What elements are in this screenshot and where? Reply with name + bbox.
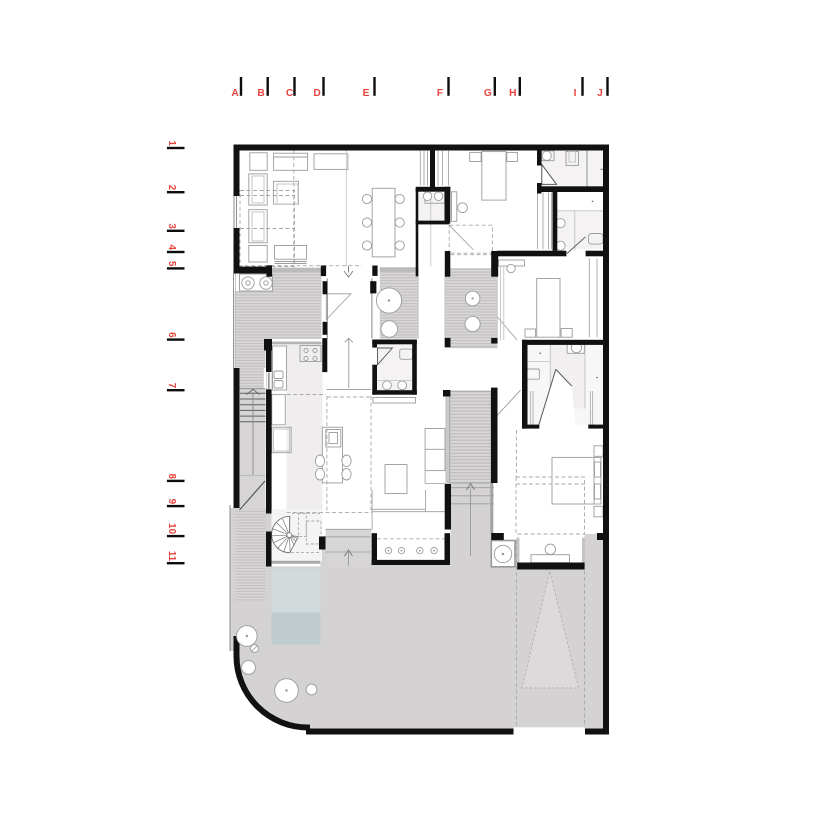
svg-text:F: F xyxy=(437,88,443,99)
svg-text:1: 1 xyxy=(166,141,177,147)
svg-text:5: 5 xyxy=(166,261,177,267)
svg-text:H: H xyxy=(509,88,516,99)
svg-text:B: B xyxy=(257,88,264,99)
svg-text:J: J xyxy=(597,88,603,99)
svg-text:4: 4 xyxy=(166,245,177,251)
svg-text:2: 2 xyxy=(166,185,177,191)
svg-text:9: 9 xyxy=(166,499,177,505)
svg-text:10: 10 xyxy=(166,523,177,534)
svg-text:D: D xyxy=(313,88,320,99)
svg-text:G: G xyxy=(484,88,492,99)
svg-text:6: 6 xyxy=(166,332,177,338)
svg-text:A: A xyxy=(231,88,239,99)
svg-text:11: 11 xyxy=(166,551,177,562)
svg-text:I: I xyxy=(574,88,577,99)
svg-text:7: 7 xyxy=(166,383,177,389)
svg-text:3: 3 xyxy=(166,223,177,229)
svg-text:C: C xyxy=(286,88,294,99)
svg-text:E: E xyxy=(363,88,370,99)
svg-text:8: 8 xyxy=(166,473,177,479)
